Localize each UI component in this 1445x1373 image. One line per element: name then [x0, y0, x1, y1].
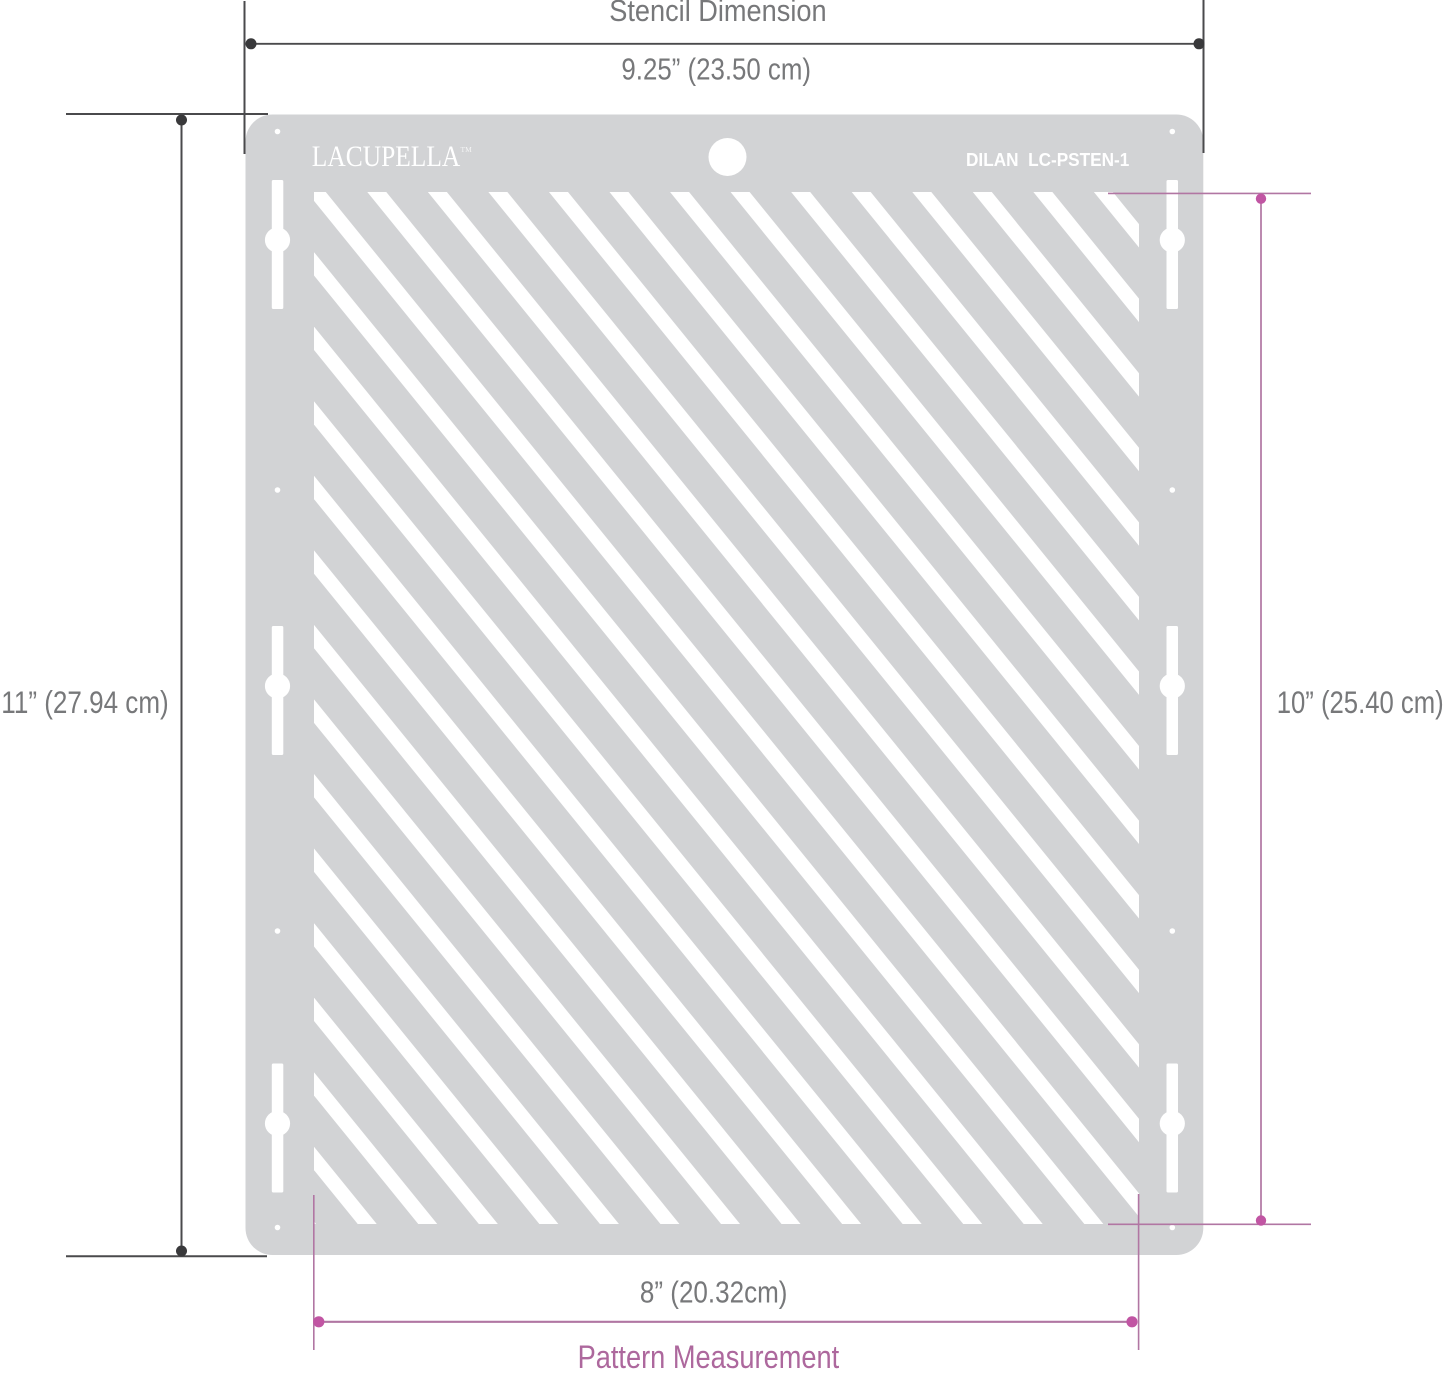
svg-text:9.25” (23.50 cm): 9.25” (23.50 cm): [621, 52, 811, 87]
svg-text:LACUPELLA: LACUPELLA: [312, 141, 461, 173]
svg-text:11” (27.94 cm): 11” (27.94 cm): [1, 684, 168, 720]
svg-text:TM: TM: [461, 145, 473, 154]
svg-text:Pattern Measurement: Pattern Measurement: [578, 1339, 840, 1373]
svg-text:Stencil Dimension: Stencil Dimension: [609, 0, 826, 28]
svg-text:DILAN LC-PSTEN-1: DILAN LC-PSTEN-1: [966, 149, 1129, 170]
svg-text:10” (25.40 cm): 10” (25.40 cm): [1277, 684, 1444, 720]
svg-text:8” (20.32cm): 8” (20.32cm): [640, 1275, 788, 1310]
